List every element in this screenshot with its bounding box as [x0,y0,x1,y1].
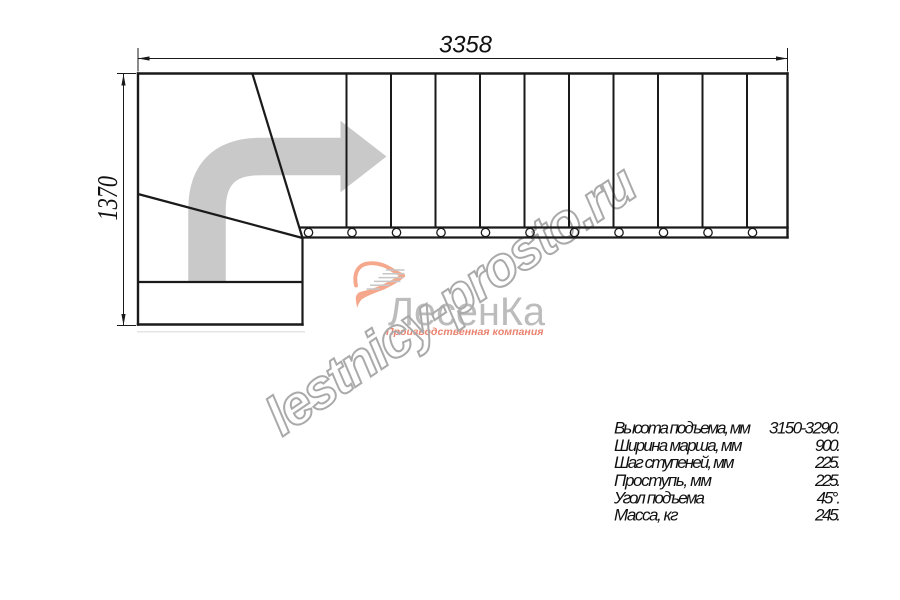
svg-text:3358: 3358 [439,32,493,59]
svg-text:Угол подъема: Угол подъема [613,488,705,507]
svg-text:1370: 1370 [93,176,124,221]
svg-text:225.: 225. [814,453,841,472]
svg-text:900.: 900. [815,436,841,455]
svg-text:Шаг ступеней, мм: Шаг ступеней, мм [614,453,735,472]
svg-text:245.: 245. [814,506,841,525]
svg-text:3150-3290.: 3150-3290. [769,419,841,438]
svg-text:Ширина марша, мм: Ширина марша, мм [614,436,743,455]
svg-text:225.: 225. [814,471,841,490]
svg-text:45°.: 45°. [817,488,842,507]
svg-text:Высота подъема, мм: Высота подъема, мм [614,419,751,438]
svg-text:Проступь, мм: Проступь, мм [614,471,712,490]
svg-text:Масса, кг: Масса, кг [614,506,679,525]
